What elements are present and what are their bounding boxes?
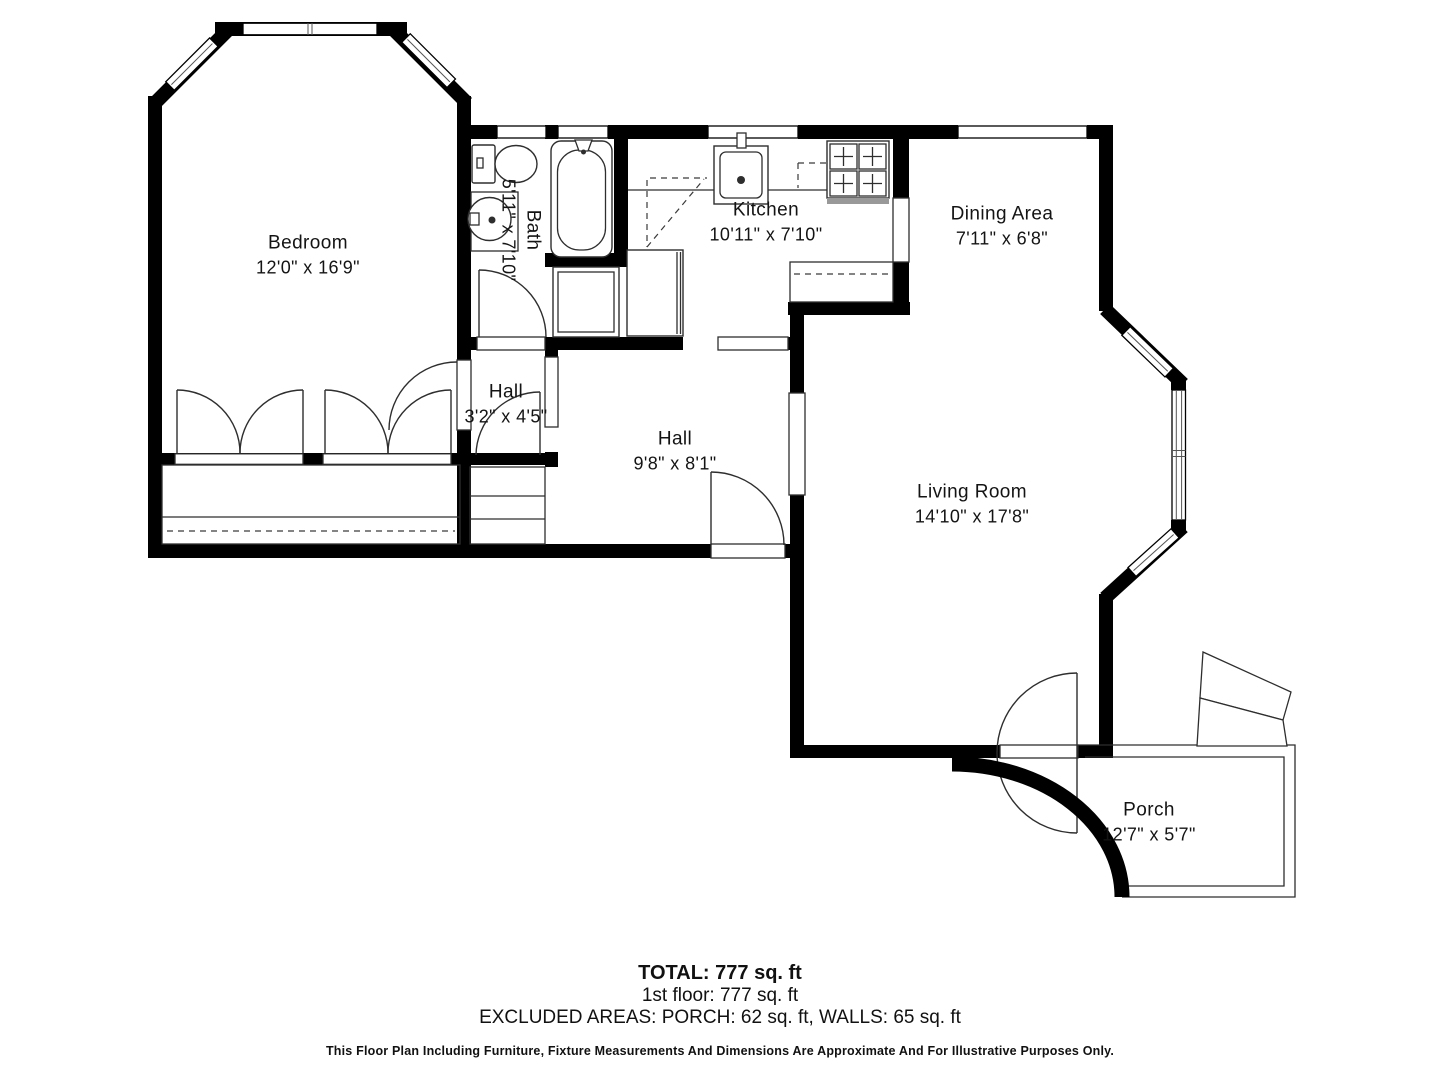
- bay-window-right: [402, 34, 456, 88]
- closet1-track: [175, 454, 303, 465]
- hall-north-seg2: [545, 337, 683, 350]
- porch-dims: 12'7" x 5'7": [1102, 823, 1196, 847]
- porch-label: Porch 12'7" x 5'7": [1102, 798, 1196, 847]
- porch-structure: [952, 652, 1295, 897]
- closet1-door-arc-left: [177, 390, 240, 453]
- bay-cap-top: [1171, 379, 1186, 390]
- kitchen-hall-cased-opening: [718, 337, 788, 350]
- porch-curved-wall: [952, 764, 1122, 897]
- hall-north-seg1: [457, 337, 477, 350]
- excluded-areas-text: EXCLUDED AREAS: PORCH: 62 sq. ft, WALLS:…: [0, 1007, 1440, 1029]
- dining-dims: 7'11" x 6'8": [951, 227, 1054, 251]
- small-hall-label: Hall 3'2" x 4'5": [464, 380, 547, 429]
- tub-window: [558, 126, 608, 138]
- openings: [457, 198, 1078, 758]
- dining-name: Dining Area: [951, 202, 1054, 227]
- closet2-door-arc-right: [388, 390, 451, 453]
- small-hall-name: Hall: [464, 380, 547, 405]
- total-area-text: TOTAL: 777 sq. ft: [0, 962, 1440, 985]
- top-wall-seg2: [545, 125, 558, 139]
- dining-east-wall: [1099, 139, 1113, 311]
- top-wall-seg3: [608, 125, 708, 139]
- porch-door-sill: [1000, 745, 1078, 758]
- hall-closet: [470, 467, 545, 544]
- small-hall-dims: 3'2" x 4'5": [464, 405, 547, 429]
- kitchen-sink-box: [714, 146, 768, 204]
- bay-window-left: [166, 38, 218, 90]
- bedroom-dims: 12'0" x 16'9": [256, 256, 360, 280]
- bedroom-right-wall: [457, 96, 471, 360]
- hall-living-opening: [789, 393, 805, 495]
- bath-kitchen-wall: [614, 139, 628, 253]
- living-dims: 14'10" x 17'8": [915, 505, 1029, 529]
- bath-label: Bath 5'11" x 7'10": [497, 179, 546, 282]
- kitchen-dining-opening: [893, 198, 909, 262]
- bay-window-top: [243, 23, 377, 35]
- bedroom-label: Bedroom 12'0" x 16'9": [256, 231, 360, 280]
- hall-label: Hall 9'8" x 8'1": [633, 427, 716, 476]
- bedroom-right-wall-lower: [457, 430, 471, 556]
- living-bay-window-middle: [1172, 390, 1186, 520]
- bath-faucet: [470, 213, 479, 225]
- top-wall-seg1: [471, 125, 497, 139]
- dining-window: [958, 126, 1087, 138]
- living-label: Living Room 14'10" x 17'8": [915, 480, 1029, 529]
- living-south-wall-left: [790, 745, 1000, 758]
- bath-name: Bath: [521, 179, 546, 282]
- refrigerator: [627, 250, 683, 336]
- first-floor-area-text: 1st floor: 777 sq. ft: [0, 985, 1440, 1007]
- hall-dims: 9'8" x 8'1": [633, 452, 716, 476]
- living-east-wall: [1099, 594, 1113, 758]
- summary-footer: TOTAL: 777 sq. ft 1st floor: 777 sq. ft …: [0, 962, 1440, 1058]
- bath-sink-drain: [489, 217, 496, 224]
- top-wall-seg4: [798, 125, 958, 139]
- shower-head-dot: [581, 150, 586, 155]
- living-south-wall-right: [1078, 745, 1113, 758]
- living-bay-window-upper: [1122, 327, 1173, 377]
- entry-door-arc: [711, 472, 784, 545]
- porch-name: Porch: [1102, 798, 1196, 823]
- peninsula-counter: [790, 262, 893, 302]
- closet-interior: [162, 465, 460, 544]
- living-bay-window-lower: [1128, 529, 1179, 577]
- bath-dims: 5'11" x 7'10": [497, 179, 521, 282]
- bedroom-name: Bedroom: [256, 231, 360, 256]
- kitchen-faucet: [737, 133, 746, 148]
- bath-door-sill: [477, 337, 545, 350]
- kitchen-window: [708, 126, 798, 138]
- floor-plan-page: Bedroom 12'0" x 16'9" Bath 5'11" x 7'10"…: [0, 0, 1440, 1080]
- living-name: Living Room: [915, 480, 1029, 505]
- closet2-door-arc-left: [325, 390, 388, 453]
- toilet-bowl: [495, 146, 537, 183]
- closet1-door-arc-right: [240, 390, 303, 453]
- living-west-wall-lower: [790, 495, 804, 758]
- closet2-track: [323, 454, 451, 465]
- kitchen-dims: 10'11" x 7'10": [710, 223, 823, 247]
- living-west-wall-upper: [790, 302, 804, 393]
- bedroom-left-wall: [148, 96, 162, 556]
- bath-window: [497, 126, 546, 138]
- disclaimer-text: This Floor Plan Including Furniture, Fix…: [0, 1044, 1440, 1058]
- dining-label: Dining Area 7'11" x 6'8": [951, 202, 1054, 251]
- kitchen-dining-wall-upper: [893, 139, 909, 198]
- hall-name: Hall: [633, 427, 716, 452]
- kitchen-label: Kitchen 10'11" x 7'10": [710, 198, 823, 247]
- kitchen-name: Kitchen: [710, 198, 823, 223]
- top-wall-seg5: [1087, 125, 1113, 139]
- stove-front-band: [827, 198, 889, 204]
- kitchen-sink-drain: [737, 176, 745, 184]
- pantry-closet: [553, 267, 619, 337]
- entry-door-sill: [711, 544, 785, 558]
- floor-plan-drawing: [0, 0, 1440, 1080]
- kitchen-south-wall: [788, 302, 910, 315]
- south-wall-left: [148, 544, 804, 558]
